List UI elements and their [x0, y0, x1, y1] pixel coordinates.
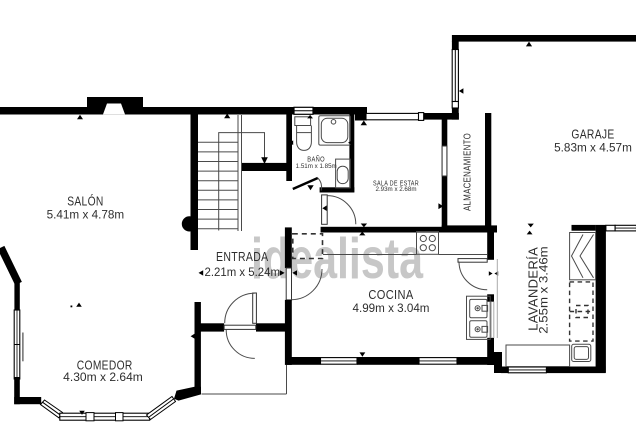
svg-text:ALMACENAMIENTO: ALMACENAMIENTO [462, 133, 474, 211]
svg-text:4.30m x 2.64m: 4.30m x 2.64m [63, 371, 143, 384]
svg-text:4.99m x 3.04m: 4.99m x 3.04m [353, 302, 430, 315]
svg-text:GARAJE: GARAJE [571, 127, 614, 141]
svg-text:2.55m x 3.46m: 2.55m x 3.46m [537, 246, 551, 334]
svg-text:5.83m x 4.57m: 5.83m x 4.57m [554, 142, 632, 155]
svg-text:1.51m x 1.85m: 1.51m x 1.85m [296, 163, 337, 170]
svg-text:COCINA: COCINA [368, 288, 413, 302]
svg-text:idealista: idealista [251, 227, 424, 291]
svg-text:BAÑO: BAÑO [307, 154, 325, 163]
svg-text:2.93m x 2.68m: 2.93m x 2.68m [376, 186, 417, 193]
svg-text:5.41m x 4.78m: 5.41m x 4.78m [47, 208, 125, 221]
svg-text:2.21m x 5.24m: 2.21m x 5.24m [205, 266, 281, 279]
svg-text:SALÓN: SALÓN [67, 194, 104, 209]
svg-text:ENTRADA: ENTRADA [216, 250, 269, 264]
